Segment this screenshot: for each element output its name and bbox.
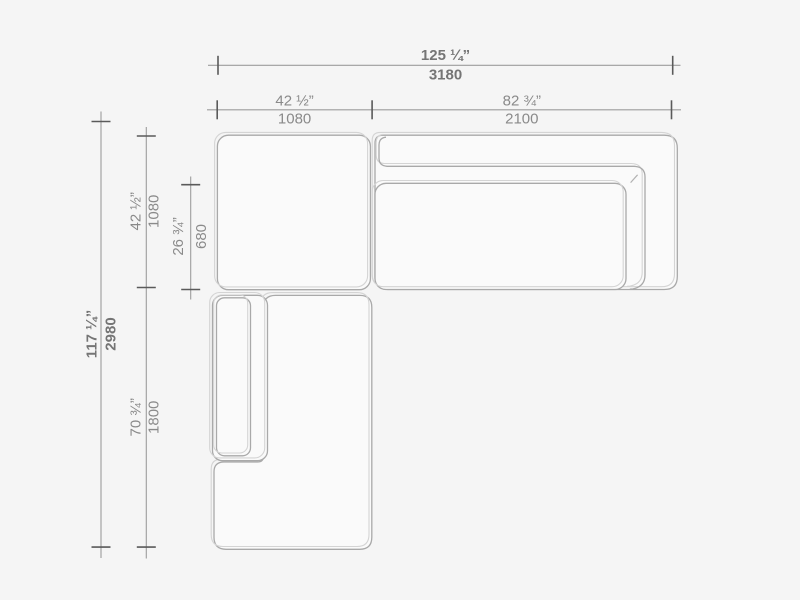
svg-text:2100: 2100	[505, 111, 538, 128]
svg-text:42 ½”: 42 ½”	[127, 192, 144, 230]
svg-text:3180: 3180	[429, 67, 462, 84]
svg-text:1800: 1800	[145, 401, 162, 434]
svg-text:680: 680	[193, 224, 210, 249]
svg-text:42 ½”: 42 ½”	[275, 93, 313, 110]
svg-text:117 ¼”: 117 ¼”	[84, 310, 101, 358]
svg-text:1080: 1080	[278, 111, 311, 128]
svg-text:82 ¾”: 82 ¾”	[503, 93, 541, 110]
svg-text:70 ¾”: 70 ¾”	[127, 398, 144, 436]
svg-text:125 ¼”: 125 ¼”	[421, 47, 470, 64]
svg-text:2980: 2980	[103, 317, 120, 350]
svg-text:1080: 1080	[145, 195, 162, 228]
svg-text:26 ¾”: 26 ¾”	[170, 217, 187, 255]
